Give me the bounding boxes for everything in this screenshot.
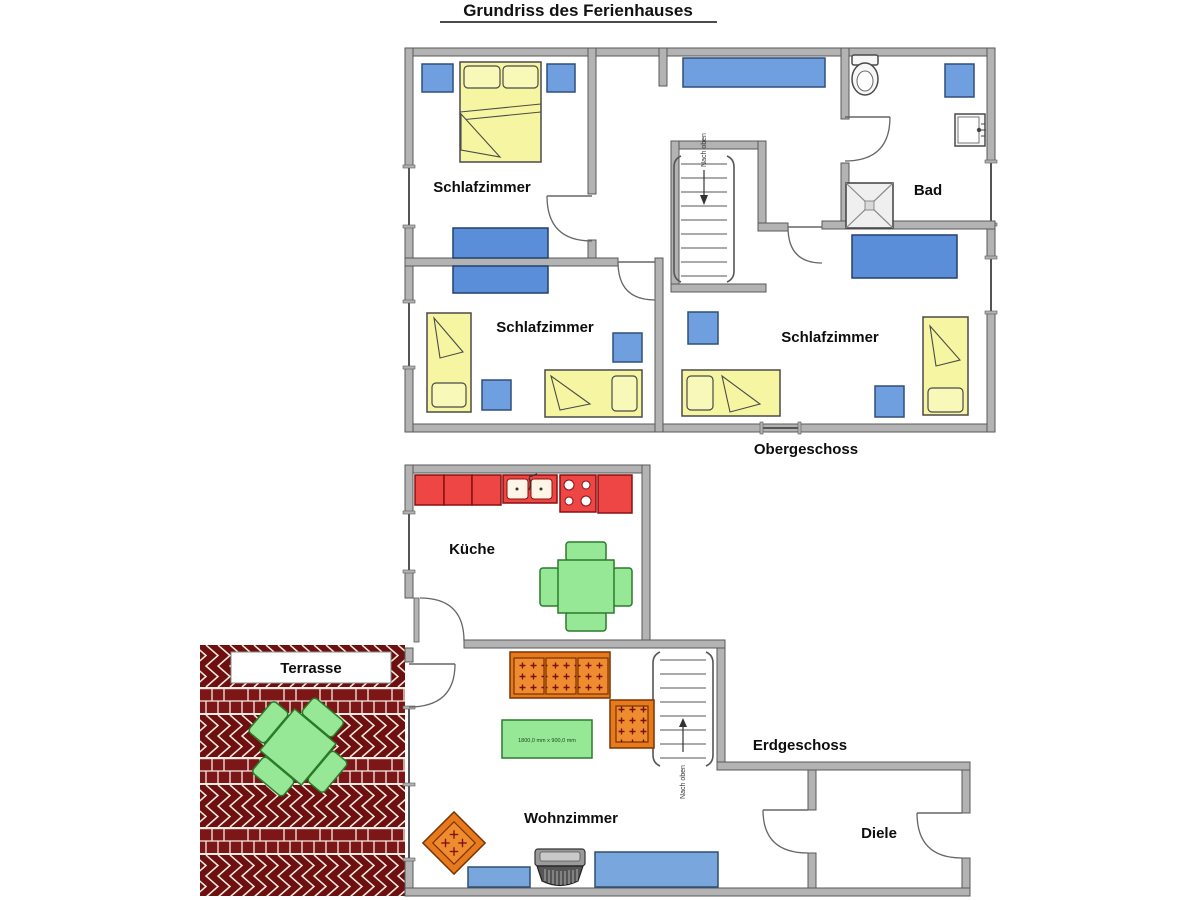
ground-doors <box>409 598 962 858</box>
sideboard <box>468 867 530 887</box>
nightstand <box>613 333 642 362</box>
single-bed <box>682 370 780 416</box>
wardrobe <box>453 266 548 293</box>
nightstand <box>875 386 904 417</box>
nightstand <box>482 380 511 410</box>
hallway-closet <box>683 58 825 87</box>
kitchen-counter <box>415 474 632 513</box>
bedroom-bottom-left: Schlafzimmer <box>427 313 642 417</box>
room-label-bedroom2: Schlafzimmer <box>496 319 594 336</box>
door-icon <box>618 262 655 300</box>
arrow-down-icon <box>700 195 708 205</box>
room-label-bedroom3: Schlafzimmer <box>781 329 879 346</box>
single-bed <box>923 317 968 415</box>
door-icon <box>845 117 890 161</box>
window-icon <box>985 256 997 314</box>
upper-floor-plan: Nach oben Schlafzimmer <box>403 48 997 458</box>
nightstand <box>688 312 718 344</box>
sideboard <box>595 852 718 887</box>
floor-label-upper: Obergeschoss <box>754 441 858 458</box>
room-label-terrace: Terrasse <box>280 660 341 677</box>
terrace: Terrasse <box>200 645 405 896</box>
window-icon <box>985 160 997 226</box>
door-icon <box>547 196 592 241</box>
room-label-kitchen: Küche <box>449 541 495 558</box>
room-label-bedroom1: Schlafzimmer <box>433 179 531 196</box>
floor-label-ground: Erdgeschoss <box>753 737 847 754</box>
stairs-direction-label: Nach oben <box>680 765 687 799</box>
arrow-up-icon <box>679 718 687 727</box>
room-label-bath: Bad <box>914 182 942 199</box>
bath-cabinet <box>945 64 974 97</box>
door-icon <box>917 813 962 858</box>
window-icon <box>403 165 415 228</box>
floor-plan-page: Grundriss des Ferienhauses <box>0 0 1200 900</box>
window-icon <box>403 511 415 573</box>
bathroom: Bad <box>846 55 986 228</box>
single-bed <box>545 370 642 417</box>
door-icon <box>763 810 808 853</box>
coffee-table-dimensions: 1800,0 mm x 900,0 mm <box>518 738 576 744</box>
sink-icon <box>955 114 986 146</box>
stairs-direction-label: Nach oben <box>701 133 708 167</box>
ground-floor-plan: Küche Nach oben <box>403 465 970 896</box>
tv-icon <box>535 849 585 886</box>
wardrobe <box>852 235 957 278</box>
window-icon <box>403 300 415 369</box>
sofa <box>510 652 610 698</box>
wardrobe <box>453 228 548 258</box>
kitchen-sink-icon <box>503 474 557 503</box>
nightstand <box>422 64 453 92</box>
upper-stairs: Nach oben <box>674 133 734 282</box>
door-icon <box>409 664 455 707</box>
room-label-hallway: Diele <box>861 825 897 842</box>
page-title: Grundriss des Ferienhauses <box>463 1 693 20</box>
floor-plan-drawing: Grundriss des Ferienhauses <box>0 0 1200 900</box>
shower-icon <box>846 183 893 228</box>
armchair <box>610 700 654 748</box>
lounge-chair <box>423 812 485 874</box>
stove-icon <box>560 475 596 512</box>
toilet-icon <box>852 55 878 95</box>
double-bed <box>460 62 541 162</box>
ground-stairs: Nach oben <box>653 652 713 799</box>
room-label-living: Wohnzimmer <box>524 810 618 827</box>
coffee-table: 1800,0 mm x 900,0 mm <box>502 720 592 758</box>
door-icon <box>414 598 464 642</box>
dining-table-set <box>540 542 632 631</box>
living-room: 1800,0 mm x 900,0 mm Wohnzi <box>423 652 718 887</box>
nightstand <box>547 64 575 92</box>
single-bed <box>427 313 471 412</box>
door-icon <box>788 227 822 263</box>
kitchen: Küche <box>415 474 632 631</box>
